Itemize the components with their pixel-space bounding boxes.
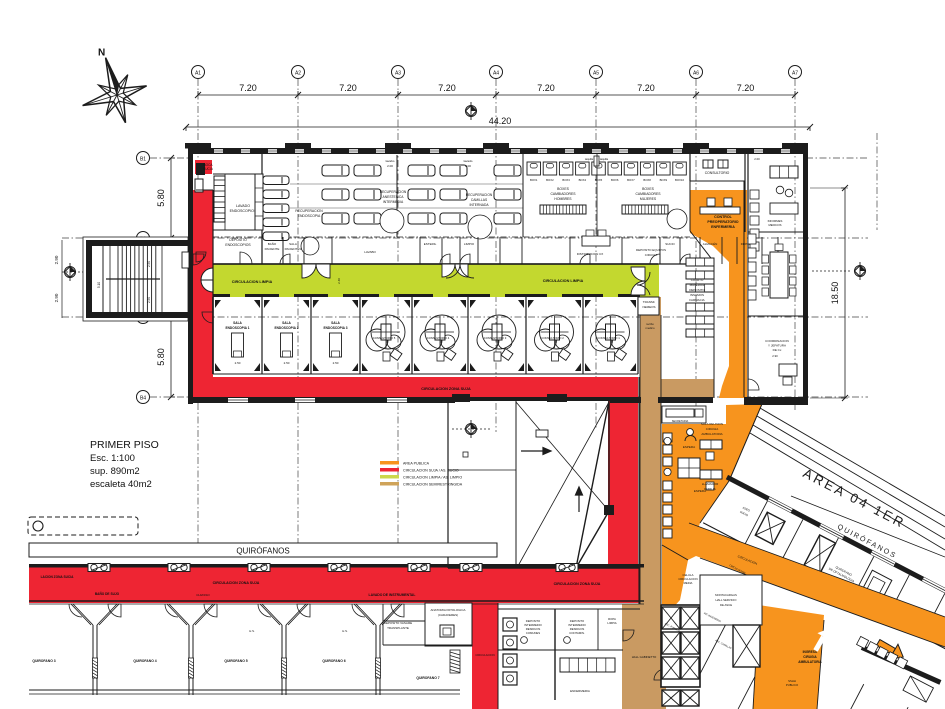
svg-text:FARMACIA: FARMACIA bbox=[689, 298, 704, 302]
svg-text:AREA PUBLICA: AREA PUBLICA bbox=[403, 462, 430, 466]
svg-text:CIRCULACION ZONA SUJA: CIRCULACION ZONA SUJA bbox=[421, 387, 471, 391]
svg-text:ANESTESICA: ANESTESICA bbox=[383, 195, 405, 199]
svg-text:CONTAMIN.: CONTAMIN. bbox=[569, 631, 585, 635]
svg-text:ENFERMERIA: ENFERMERIA bbox=[570, 689, 590, 693]
svg-text:Y JEFATURA: Y JEFATURA bbox=[768, 344, 786, 348]
svg-text:HALL SERVICIO: HALL SERVICIO bbox=[716, 598, 738, 602]
svg-text:CONSULTORIO 3: CONSULTORIO 3 bbox=[484, 336, 507, 340]
svg-text:ESTERIL: ESTERIL bbox=[424, 242, 437, 246]
svg-text:CIRUGIA: CIRUGIA bbox=[803, 655, 817, 659]
svg-text:(CADAVERES): (CADAVERES) bbox=[438, 613, 458, 617]
svg-text:LAVADO: LAVADO bbox=[236, 204, 250, 208]
svg-text:QUIROFANO 6: QUIROFANO 6 bbox=[322, 659, 345, 663]
svg-text:BAÑO: BAÑO bbox=[268, 241, 277, 246]
svg-text:Esc. 1:100: Esc. 1:100 bbox=[90, 453, 135, 464]
svg-text:INTERNADA: INTERNADA bbox=[469, 203, 489, 207]
svg-text:LAVABO: LAVABO bbox=[364, 250, 376, 254]
svg-text:SECRETARIA: SECRETARIA bbox=[672, 419, 689, 423]
svg-text:CIRCULACION: CIRCULACION bbox=[475, 653, 494, 657]
svg-text:7.20: 7.20 bbox=[637, 83, 655, 93]
svg-text:A4: A4 bbox=[493, 71, 499, 77]
svg-text:A2: A2 bbox=[295, 71, 301, 77]
svg-text:SUCIO: SUCIO bbox=[665, 242, 675, 246]
svg-text:2.50: 2.50 bbox=[284, 361, 290, 365]
svg-text:BOXES: BOXES bbox=[557, 187, 569, 191]
svg-text:DEPOSITO EQUIPOS: DEPOSITO EQUIPOS bbox=[636, 248, 666, 252]
svg-text:AMBULATORIA: AMBULATORIA bbox=[701, 432, 722, 436]
svg-text:COORDINACION: COORDINACION bbox=[765, 339, 789, 343]
svg-text:DEPOSITO: DEPOSITO bbox=[689, 288, 705, 292]
svg-text:44.20: 44.20 bbox=[489, 116, 512, 126]
svg-text:SALA: SALA bbox=[331, 321, 340, 325]
svg-text:RECUPERACION: RECUPERACION bbox=[295, 209, 323, 213]
svg-text:QUIROFANO 7: QUIROFANO 7 bbox=[416, 676, 439, 680]
svg-text:SALA: SALA bbox=[289, 242, 297, 246]
svg-text:DE Cx: DE Cx bbox=[773, 348, 782, 352]
svg-text:2.50: 2.50 bbox=[333, 361, 339, 365]
svg-text:7.20: 7.20 bbox=[737, 83, 755, 93]
svg-text:QUIRÓFANOS: QUIRÓFANOS bbox=[236, 547, 289, 556]
svg-text:2.90: 2.90 bbox=[54, 293, 59, 302]
svg-text:ESPERA: ESPERA bbox=[683, 445, 695, 449]
svg-text:ENDOSCOPIA 1: ENDOSCOPIA 1 bbox=[226, 326, 250, 330]
svg-text:BOX5: BOX5 bbox=[595, 178, 603, 182]
svg-text:PACIENTES: PACIENTES bbox=[285, 247, 302, 251]
svg-text:CIRCULACION LIMPIA / AS. LIMPI: CIRCULACION LIMPIA / AS. LIMPIO bbox=[403, 476, 462, 480]
svg-text:2.90: 2.90 bbox=[147, 297, 151, 303]
svg-text:DEPOSITO VASARE: DEPOSITO VASARE bbox=[384, 621, 412, 625]
svg-text:ENDOSCOPIA 3: ENDOSCOPIA 3 bbox=[324, 326, 348, 330]
svg-text:CIRCULACION LIMPIA: CIRCULACION LIMPIA bbox=[232, 280, 273, 284]
svg-text:HOMBRES: HOMBRES bbox=[554, 197, 572, 201]
svg-text:CIRCULACION ZONA SUJA: CIRCULACION ZONA SUJA bbox=[554, 582, 601, 586]
svg-text:BOX8: BOX8 bbox=[643, 178, 651, 182]
svg-text:ENDOSCOPIA 2: ENDOSCOPIA 2 bbox=[275, 326, 299, 330]
svg-text:2.40: 2.40 bbox=[337, 278, 341, 284]
svg-text:MONTACARGAS: MONTACARGAS bbox=[715, 593, 737, 597]
svg-text:FAMILIA: FAMILIA bbox=[704, 487, 716, 491]
svg-text:A3: A3 bbox=[395, 71, 401, 77]
svg-text:INTERMEDIA: INTERMEDIA bbox=[383, 200, 404, 204]
svg-text:medico: medico bbox=[645, 326, 654, 330]
svg-text:COMUNES: COMUNES bbox=[526, 631, 540, 635]
svg-text:2.00: 2.00 bbox=[387, 164, 393, 168]
svg-text:B4: B4 bbox=[140, 396, 146, 402]
svg-text:2.90: 2.90 bbox=[147, 261, 151, 267]
svg-text:5.10: 5.10 bbox=[97, 282, 101, 288]
svg-text:7.20: 7.20 bbox=[537, 83, 555, 93]
svg-text:RECUPERACION: RECUPERACION bbox=[380, 190, 407, 194]
svg-text:SALA: SALA bbox=[282, 321, 291, 325]
svg-text:LLAMADOR: LLAMADOR bbox=[702, 482, 719, 486]
svg-text:BOX4: BOX4 bbox=[579, 178, 587, 182]
svg-text:escaleta 40m2: escaleta 40m2 bbox=[90, 479, 152, 490]
svg-text:TRANSPLANTE: TRANSPLANTE bbox=[387, 626, 409, 630]
svg-text:A5: A5 bbox=[593, 71, 599, 77]
svg-text:sup. 890m2: sup. 890m2 bbox=[90, 466, 140, 477]
svg-text:CONSULTORIO 2: CONSULTORIO 2 bbox=[541, 336, 564, 340]
svg-text:2.90: 2.90 bbox=[772, 354, 778, 358]
svg-text:CIRCULACION ZONA SUJA: CIRCULACION ZONA SUJA bbox=[213, 581, 260, 585]
svg-text:CONTROL: CONTROL bbox=[714, 215, 733, 219]
svg-text:CONSULTORIO 1: CONSULTORIO 1 bbox=[597, 336, 620, 340]
svg-text:ALMACÉN: ALMACÉN bbox=[703, 241, 718, 246]
svg-text:BOX1: BOX1 bbox=[530, 178, 538, 182]
svg-text:AMBULATORIA: AMBULATORIA bbox=[798, 660, 822, 664]
svg-text:ENDOSCOPIOS: ENDOSCOPIOS bbox=[230, 209, 257, 213]
svg-text:LIMPIO: LIMPIO bbox=[464, 242, 475, 246]
svg-text:INGRESO: INGRESO bbox=[803, 650, 818, 654]
svg-text:BOX6: BOX6 bbox=[611, 178, 619, 182]
svg-text:RECUPERACION: RECUPERACION bbox=[466, 193, 493, 197]
svg-text:TRANSF.: TRANSF. bbox=[643, 300, 656, 304]
svg-text:CONSULTORIO 5: CONSULTORIO 5 bbox=[373, 336, 396, 340]
svg-text:DEPOSITO: DEPOSITO bbox=[229, 238, 247, 242]
svg-text:BOX3: BOX3 bbox=[562, 178, 570, 182]
svg-text:QUIROFANO 5: QUIROFANO 5 bbox=[224, 659, 247, 663]
svg-text:DE ASCE: DE ASCE bbox=[720, 603, 732, 607]
svg-text:SUCIA: SUCIA bbox=[203, 167, 214, 171]
svg-text:BOX9: BOX9 bbox=[660, 178, 668, 182]
svg-text:CIRCULACION SEMIRESTRINGIDA: CIRCULACION SEMIRESTRINGIDA bbox=[403, 483, 463, 487]
svg-text:A7: A7 bbox=[792, 71, 798, 77]
svg-text:BOX10: BOX10 bbox=[675, 178, 684, 182]
svg-text:CAMILLAS: CAMILLAS bbox=[471, 198, 488, 202]
svg-text:CIRCULACION SUJA / AS. SUCIO: CIRCULACION SUJA / AS. SUCIO bbox=[403, 469, 459, 473]
svg-text:CIRCULACION LIMPIA: CIRCULACION LIMPIA bbox=[543, 279, 584, 283]
svg-text:7.20: 7.20 bbox=[438, 83, 456, 93]
svg-text:taquilla: taquilla bbox=[600, 157, 609, 161]
svg-text:BOXES: BOXES bbox=[642, 187, 654, 191]
svg-text:LAVADO DE INSTRUMENTAL: LAVADO DE INSTRUMENTAL bbox=[369, 593, 416, 597]
svg-text:MUJERES: MUJERES bbox=[640, 197, 657, 201]
svg-text:CONSULTORIO: CONSULTORIO bbox=[705, 171, 730, 175]
svg-text:QUIROFANO 4: QUIROFANO 4 bbox=[133, 659, 156, 663]
svg-text:QUIROFANO 3: QUIROFANO 3 bbox=[32, 659, 55, 663]
svg-text:ENDOSCOPIOS: ENDOSCOPIOS bbox=[225, 243, 251, 247]
svg-text:BAÑO DE SUJO: BAÑO DE SUJO bbox=[95, 591, 120, 596]
svg-text:7.20: 7.20 bbox=[339, 83, 357, 93]
svg-text:CONSULTORIO 4: CONSULTORIO 4 bbox=[427, 336, 450, 340]
svg-text:CIRUGIA: CIRUGIA bbox=[706, 427, 719, 431]
svg-text:LACION ZONA SUCIA: LACION ZONA SUCIA bbox=[41, 575, 75, 579]
svg-text:N: N bbox=[98, 48, 105, 59]
svg-text:H.S.: H.S. bbox=[249, 629, 255, 633]
svg-text:A6: A6 bbox=[693, 71, 699, 77]
svg-text:PREOPERATORIO: PREOPERATORIO bbox=[707, 220, 738, 224]
svg-text:18.50: 18.50 bbox=[830, 282, 840, 305]
svg-text:INSUMOS: INSUMOS bbox=[690, 293, 704, 297]
svg-text:MEDIA: MEDIA bbox=[684, 581, 693, 585]
svg-text:ANATOMIA PATOLOGICA: ANATOMIA PATOLOGICA bbox=[430, 608, 465, 612]
svg-text:lavado: lavado bbox=[464, 159, 473, 163]
svg-text:BOX2: BOX2 bbox=[546, 178, 554, 182]
svg-text:NEMEOS: NEMEOS bbox=[642, 305, 655, 309]
svg-text:MATERIAL: MATERIAL bbox=[690, 283, 705, 287]
svg-text:taquilla: taquilla bbox=[585, 157, 594, 161]
svg-text:2.00: 2.00 bbox=[465, 164, 471, 168]
svg-text:CHIASSO: CHIASSO bbox=[196, 593, 210, 597]
svg-text:H.S.: H.S. bbox=[342, 629, 348, 633]
svg-text:2.90: 2.90 bbox=[54, 255, 59, 264]
svg-text:B1: B1 bbox=[140, 157, 146, 163]
svg-text:2.00: 2.00 bbox=[754, 157, 760, 161]
svg-text:2.50: 2.50 bbox=[235, 361, 241, 365]
svg-text:CUARTO: CUARTO bbox=[691, 278, 704, 282]
svg-text:PUBLICO: PUBLICO bbox=[786, 683, 799, 687]
svg-text:PRIMER PISO: PRIMER PISO bbox=[90, 439, 159, 451]
svg-text:CAMBIADORES: CAMBIADORES bbox=[550, 192, 576, 196]
svg-text:CAMBIADORES: CAMBIADORES bbox=[635, 192, 661, 196]
svg-text:5.80: 5.80 bbox=[156, 189, 166, 207]
svg-text:lavabo: lavabo bbox=[386, 159, 395, 163]
svg-text:ENFERMERIA: ENFERMERIA bbox=[711, 225, 735, 229]
svg-text:PACIENTE: PACIENTE bbox=[265, 247, 280, 251]
svg-text:5.80: 5.80 bbox=[156, 348, 166, 366]
svg-text:LIMPIA: LIMPIA bbox=[607, 621, 616, 625]
svg-text:HALL GABINETTO: HALL GABINETTO bbox=[632, 655, 657, 659]
svg-text:A1: A1 bbox=[195, 71, 201, 77]
svg-text:SALA: SALA bbox=[233, 321, 242, 325]
svg-text:7.20: 7.20 bbox=[239, 83, 257, 93]
svg-text:MEDICOS: MEDICOS bbox=[768, 223, 781, 227]
svg-text:ENDOSCOPIA: ENDOSCOPIA bbox=[298, 214, 321, 218]
svg-text:BOX7: BOX7 bbox=[627, 178, 635, 182]
